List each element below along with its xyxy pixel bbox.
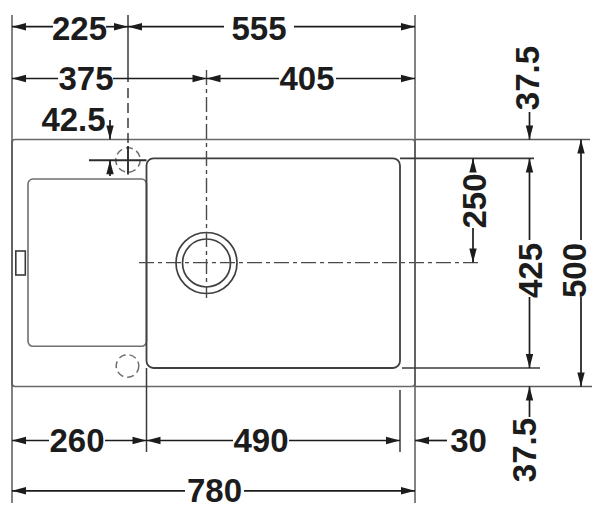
svg-text:780: 780: [187, 472, 242, 509]
svg-text:490: 490: [233, 422, 288, 459]
svg-text:500: 500: [556, 243, 593, 298]
svg-text:405: 405: [279, 60, 334, 97]
svg-text:425: 425: [512, 243, 549, 298]
svg-text:555: 555: [231, 10, 286, 47]
svg-text:260: 260: [49, 422, 104, 459]
svg-text:225: 225: [52, 10, 107, 47]
svg-text:375: 375: [58, 60, 113, 97]
svg-text:37.5: 37.5: [509, 46, 546, 110]
svg-text:42.5: 42.5: [41, 101, 105, 138]
svg-text:30: 30: [450, 422, 487, 459]
svg-text:37.5: 37.5: [506, 418, 543, 482]
svg-text:250: 250: [456, 173, 493, 228]
